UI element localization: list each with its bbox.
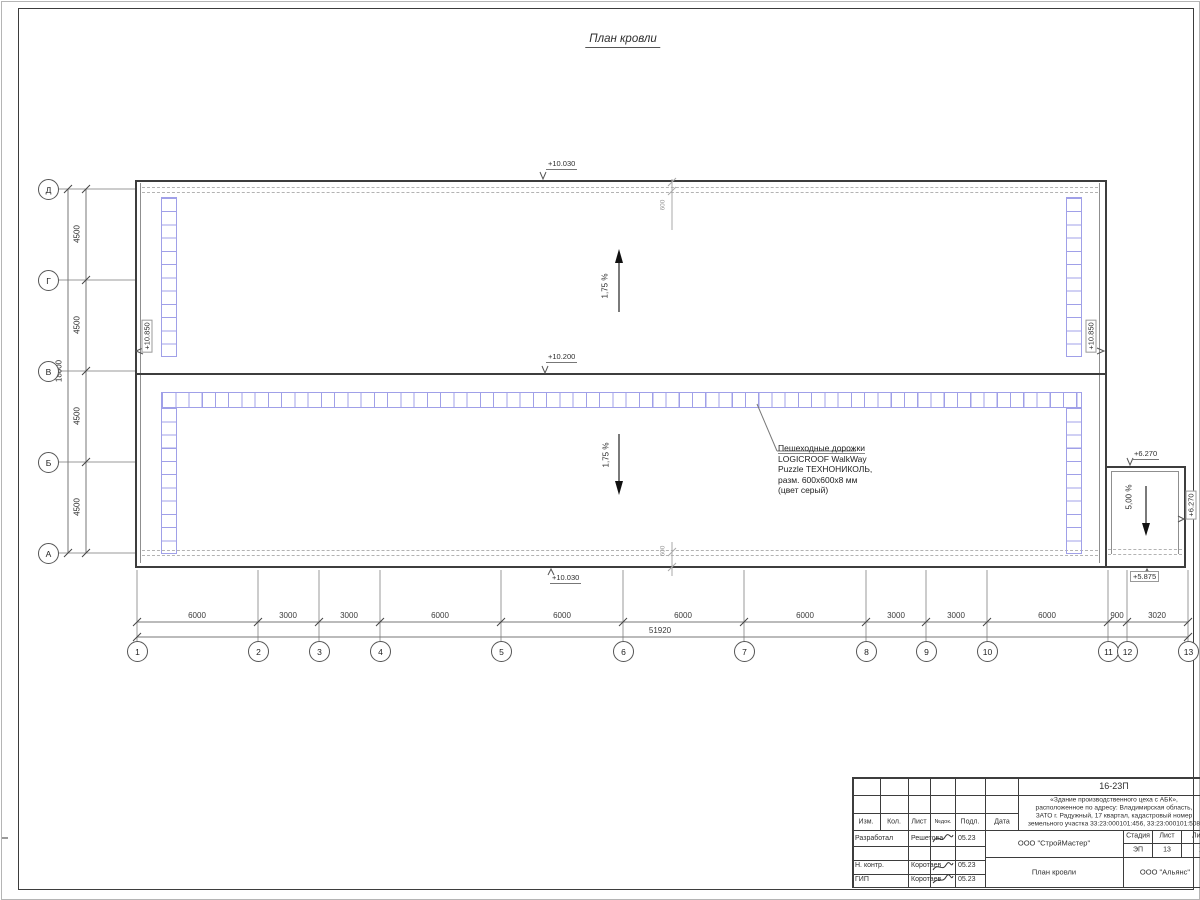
dim-left: 4500 — [73, 316, 82, 334]
roof-valley-line — [135, 373, 1107, 375]
elevation-mid: +10.200 — [546, 352, 577, 363]
dim-bottom: 6000 — [431, 611, 449, 620]
dim-bottom: 6000 — [796, 611, 814, 620]
dim-left: 4500 — [73, 407, 82, 425]
slope-label-upper: 1,75 % — [601, 274, 610, 299]
elevation-annex-bottom: +5.875 — [1130, 571, 1159, 582]
col-ndok: №док. — [935, 819, 952, 825]
walkway-lower-left — [161, 407, 177, 554]
annex-dashed-line — [1108, 549, 1182, 555]
col-list: Лист — [911, 819, 926, 826]
note-line: LOGICROOF WalkWay — [778, 454, 872, 465]
row-date: 05.23 — [958, 876, 976, 883]
col-izm: Изм. — [859, 819, 874, 826]
axis-bubble-8: 8 — [856, 641, 877, 662]
stage-label: Стадия — [1126, 833, 1150, 840]
dim-bottom: 6000 — [553, 611, 571, 620]
axis-bubble-b: Б — [38, 452, 59, 473]
signature — [931, 861, 955, 873]
dim-bottom: 6000 — [1038, 611, 1056, 620]
project-line: ЗАТО г. Радужный, 17 квартал, кадастровы… — [1036, 813, 1193, 820]
axis-bubble-1: 1 — [127, 641, 148, 662]
parapet-dashed-top — [142, 187, 1098, 193]
slope-label-lower: 1,75 % — [602, 443, 611, 468]
stage-value: ЭП — [1133, 847, 1143, 854]
drawing-name-cell: План кровли — [1032, 868, 1076, 877]
elevation-annex-top: +6.270 — [1132, 449, 1159, 460]
row-role: Н. контр. — [855, 862, 884, 869]
offset-bottom-label: 600 — [660, 546, 667, 557]
col-data: Дата — [994, 819, 1010, 826]
dim-left: 4500 — [73, 498, 82, 516]
axis-bubble-10: 10 — [977, 641, 998, 662]
row-date: 05.23 — [958, 862, 976, 869]
row-date: 05.23 — [958, 835, 976, 842]
dim-bottom: 6000 — [674, 611, 692, 620]
title-block: 16-23П «Здание производственного цеха с … — [852, 777, 1200, 888]
dim-bottom: 3020 — [1148, 611, 1166, 620]
axis-bubble-11: 11 — [1098, 641, 1119, 662]
fold-mark — [2, 837, 8, 839]
elevation-bottom: +10.030 — [550, 573, 581, 584]
doc-number: 16-23П — [1099, 781, 1129, 791]
note-line: Puzzle ТЕХНОНИКОЛЬ, — [778, 464, 872, 475]
axis-bubble-2: 2 — [248, 641, 269, 662]
elevation-right-wall: +10.850 — [1086, 319, 1097, 352]
dim-left: 4500 — [73, 225, 82, 243]
walkway-upper-left — [161, 197, 177, 357]
note-line: разм. 600х600х8 мм — [778, 475, 872, 486]
axis-bubble-a: А — [38, 543, 59, 564]
axis-bubble-d: Д — [38, 179, 59, 200]
axis-bubble-7: 7 — [734, 641, 755, 662]
parapet-dashed-bottom — [142, 550, 1098, 556]
note-line: Пешеходные дорожки — [778, 443, 865, 454]
walkway-lower-right — [1066, 407, 1082, 554]
dim-bottom: 6000 — [188, 611, 206, 620]
page-title: План кровли — [585, 33, 660, 48]
axis-bubble-5: 5 — [491, 641, 512, 662]
signature — [931, 832, 955, 845]
dim-bottom: 3000 — [887, 611, 905, 620]
dim-bottom-total: 51920 — [649, 626, 671, 635]
axis-bubble-6: 6 — [613, 641, 634, 662]
elevation-annex-right: +6.270 — [1186, 490, 1197, 519]
sheet-number: 13 — [1163, 847, 1171, 854]
project-line: «Здание производственного цеха с АБК», — [1050, 797, 1178, 804]
axis-bubble-v: В — [38, 361, 59, 382]
axis-bubble-12: 12 — [1117, 641, 1138, 662]
org-cell: ООО "СтройМастер" — [1018, 839, 1090, 848]
slope-label-annex: 5,00 % — [1125, 485, 1134, 510]
axis-bubble-13: 13 — [1178, 641, 1199, 662]
col-kol: Кол. — [887, 819, 901, 826]
axis-bubble-4: 4 — [370, 641, 391, 662]
annex-inner-line — [1111, 471, 1179, 554]
dim-bottom: 3000 — [947, 611, 965, 620]
dim-bottom: 900 — [1110, 611, 1123, 620]
drawing-sheet: План кровли — [0, 0, 1200, 900]
dim-bottom: 3000 — [340, 611, 358, 620]
walkway-note: Пешеходные дорожки LOGICROOF WalkWay Puz… — [778, 443, 872, 496]
project-line: расположенное по адресу: Владимирская об… — [1036, 805, 1193, 812]
sheets-label: Лис — [1192, 833, 1200, 840]
elevation-top: +10.030 — [546, 159, 577, 170]
col-podl: Подл. — [961, 819, 980, 826]
firm-cell: ООО "Альянс" — [1140, 868, 1190, 877]
row-role: Разработал — [855, 835, 893, 842]
axis-bubble-g: Г — [38, 270, 59, 291]
dim-bottom: 3000 — [279, 611, 297, 620]
project-line: земельного участка 33:23:000101:456, 33:… — [1028, 821, 1200, 828]
sheet-label: Лист — [1159, 833, 1174, 840]
signature — [931, 874, 955, 886]
offset-top-label: 600 — [660, 200, 667, 211]
elevation-left-wall: +10.850 — [142, 319, 153, 352]
axis-bubble-9: 9 — [916, 641, 937, 662]
row-role: ГИП — [855, 876, 869, 883]
walkway-lower-row — [161, 392, 1082, 408]
walkway-upper-right — [1066, 197, 1082, 357]
axis-bubble-3: 3 — [309, 641, 330, 662]
note-line: (цвет серый) — [778, 485, 872, 496]
